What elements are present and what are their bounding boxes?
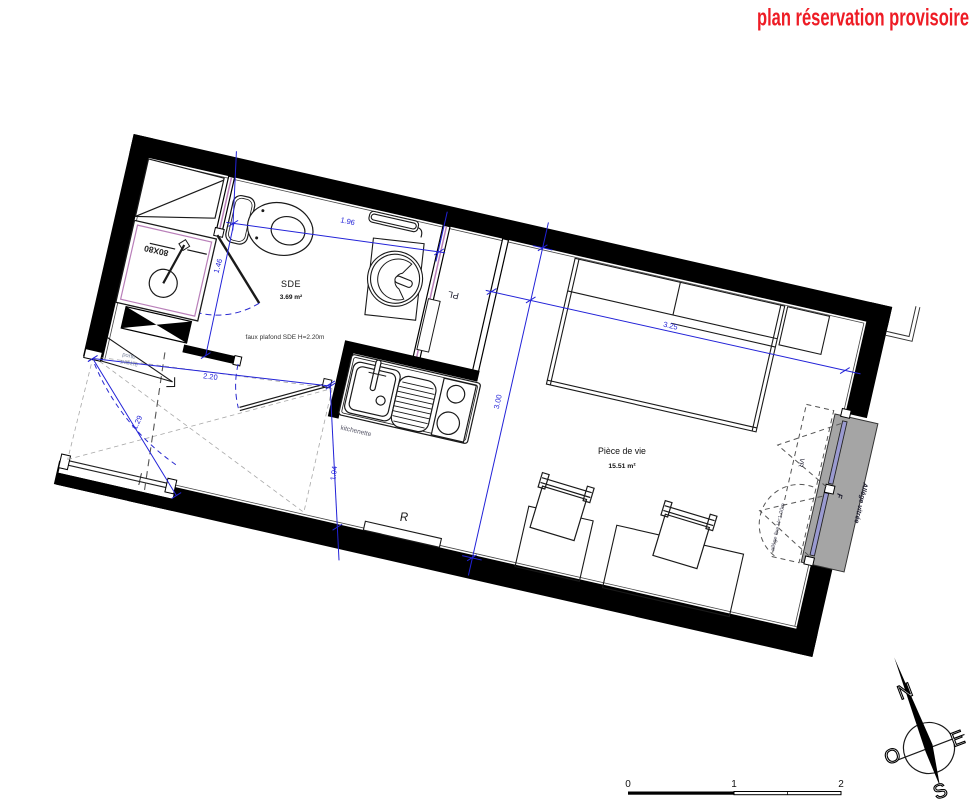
svg-text:1: 1 xyxy=(731,779,737,790)
svg-text:15.51 m²: 15.51 m² xyxy=(608,463,636,470)
svg-text:1.46: 1.46 xyxy=(212,258,225,275)
svg-text:2: 2 xyxy=(838,779,844,790)
svg-text:S: S xyxy=(930,779,950,800)
svg-text:PL: PL xyxy=(447,289,460,301)
svg-text:VR: VR xyxy=(796,457,805,468)
svg-text:kitchenette: kitchenette xyxy=(340,424,373,438)
svg-text:3.69 m²: 3.69 m² xyxy=(280,294,303,301)
svg-text:faux plafond SDE H=2.20m: faux plafond SDE H=2.20m xyxy=(246,334,325,341)
svg-text:1.04: 1.04 xyxy=(328,465,339,481)
svg-text:E: E xyxy=(948,726,968,751)
svg-text:3.00: 3.00 xyxy=(492,394,504,410)
svg-text:allège fixe H=1.00m: allège fixe H=1.00m xyxy=(770,502,787,551)
svg-text:0: 0 xyxy=(625,779,631,790)
svg-text:SDE: SDE xyxy=(281,279,301,289)
svg-text:1.96: 1.96 xyxy=(340,215,356,227)
svg-text:R: R xyxy=(400,512,408,524)
svg-text:Pièce de vie: Pièce de vie xyxy=(598,446,646,456)
svg-text:O: O xyxy=(881,744,903,770)
svg-text:2.20: 2.20 xyxy=(203,371,219,382)
svg-text:plan réservation provisoire: plan réservation provisoire xyxy=(757,5,969,32)
svg-text:1.29: 1.29 xyxy=(130,414,144,431)
